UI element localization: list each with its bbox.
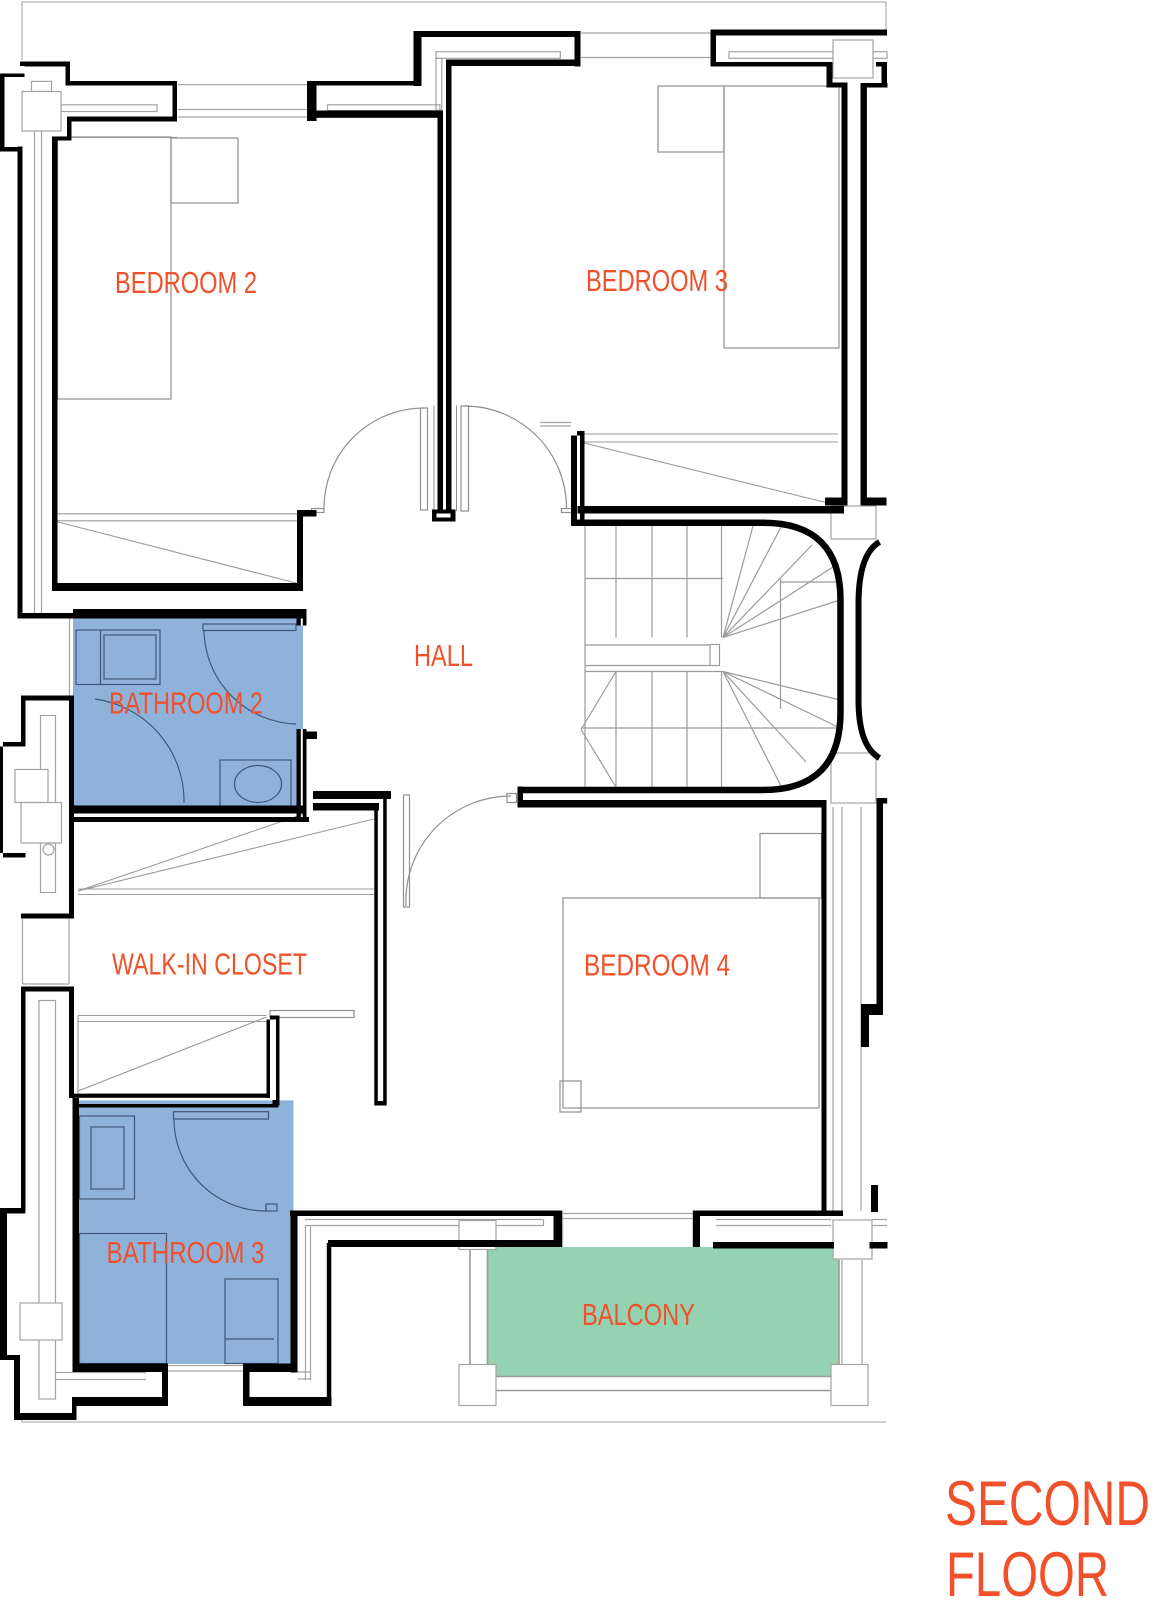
svg-text:BATHROOM 2: BATHROOM 2 bbox=[109, 687, 263, 721]
svg-text:BEDROOM 2: BEDROOM 2 bbox=[115, 266, 257, 300]
svg-text:BALCONY: BALCONY bbox=[582, 1298, 695, 1332]
svg-text:WALK-IN CLOSET: WALK-IN CLOSET bbox=[112, 948, 307, 982]
svg-text:BATHROOM 3: BATHROOM 3 bbox=[107, 1236, 265, 1270]
svg-text:BEDROOM 4: BEDROOM 4 bbox=[584, 949, 730, 983]
svg-text:SECOND: SECOND bbox=[945, 1469, 1150, 1539]
svg-text:FLOOR: FLOOR bbox=[946, 1540, 1109, 1600]
svg-text:HALL: HALL bbox=[414, 639, 473, 673]
svg-text:BEDROOM 3: BEDROOM 3 bbox=[586, 264, 728, 298]
